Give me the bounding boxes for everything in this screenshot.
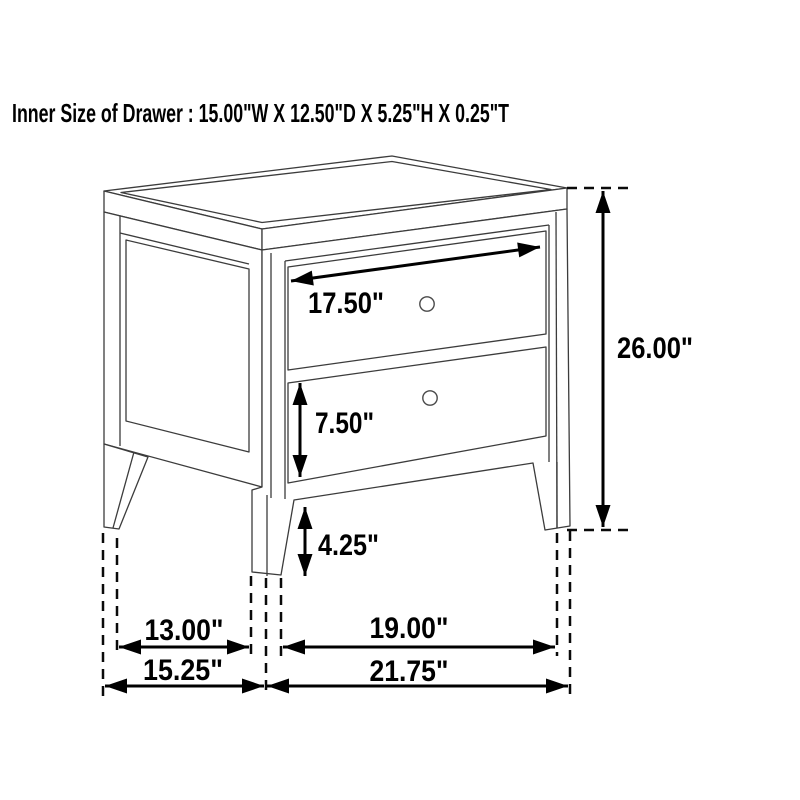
dim-label-drawer-front-width: 17.50" bbox=[308, 287, 384, 320]
nightstand-drawing bbox=[104, 156, 570, 576]
dim-label-leg-clearance: 4.25" bbox=[318, 529, 379, 562]
page-title: Inner Size of Drawer : 15.00"W X 12.50"D… bbox=[12, 98, 509, 128]
bottom-drawer-knob-icon bbox=[423, 391, 437, 405]
dim-label-overall-height: 26.00" bbox=[617, 332, 693, 365]
rear-left-leg bbox=[104, 444, 148, 529]
nightstand-diagram-canvas: Inner Size of Drawer : 15.00"W X 12.50"D… bbox=[0, 0, 800, 800]
dim-label-front-overall-width: 21.75" bbox=[370, 655, 449, 688]
dim-label-side-inner-span: 13.00" bbox=[145, 614, 224, 647]
dim-label-side-overall-depth: 15.25" bbox=[143, 654, 223, 687]
top-drawer-knob-icon bbox=[420, 297, 434, 311]
dim-label-bottom-drawer-height: 7.50" bbox=[315, 407, 374, 440]
furniture-dimension-diagram: Inner Size of Drawer : 15.00"W X 12.50"D… bbox=[0, 0, 800, 800]
dim-label-front-inner-span: 19.00" bbox=[370, 612, 449, 645]
